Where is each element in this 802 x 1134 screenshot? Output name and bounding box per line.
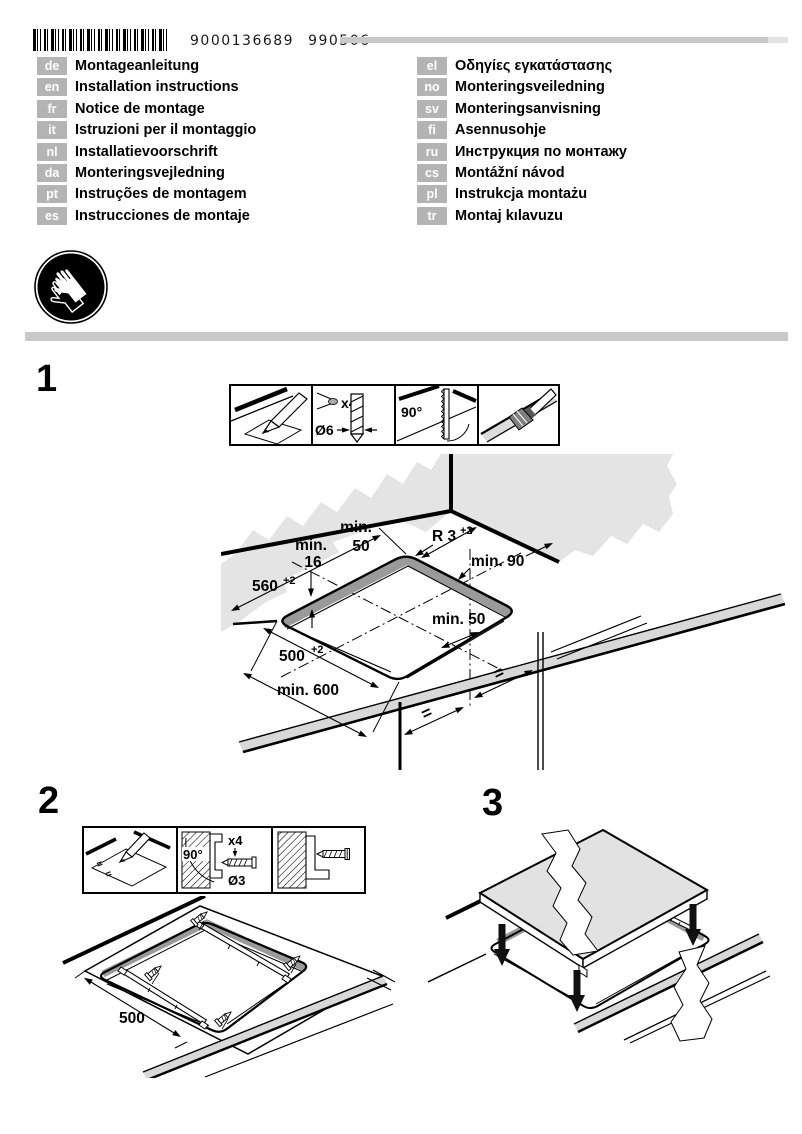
language-code-badge: es xyxy=(37,207,67,225)
worktop-outline xyxy=(85,906,382,1054)
language-title: Asennusohje xyxy=(455,122,546,138)
dim-min-90: min. 90 xyxy=(471,553,524,570)
language-code-badge: fr xyxy=(37,100,67,118)
dim-500-sup: +2 xyxy=(311,644,324,656)
language-title: Monteringsveiledning xyxy=(455,79,605,95)
dim-min-50: min. 50 xyxy=(432,611,485,628)
language-title: Οδηγίες εγκατάστασης xyxy=(455,58,612,74)
language-title: Montaj kılavuzu xyxy=(455,208,563,224)
dim-radius: R 3 xyxy=(432,528,457,545)
language-code-badge: en xyxy=(37,78,67,96)
language-title: Инструкция по монтажу xyxy=(455,144,627,160)
language-title: Notice de montage xyxy=(75,101,205,117)
language-title: Instruções de montagem xyxy=(75,186,247,202)
dim-min-600: min. 600 xyxy=(277,682,339,699)
language-code-badge: fi xyxy=(417,121,447,139)
section-divider-bar xyxy=(25,332,788,341)
dim-16: 16 xyxy=(304,554,322,571)
worktop-front-edge xyxy=(239,594,785,752)
language-row: trMontaj kılavuzu xyxy=(417,207,627,225)
language-row: enInstallation instructions xyxy=(37,78,256,96)
language-code-badge: tr xyxy=(417,207,447,225)
language-code-badge: no xyxy=(417,78,447,96)
language-row: esInstrucciones de montaje xyxy=(37,207,256,225)
language-title: Istruzioni per il montaggio xyxy=(75,122,256,138)
language-row: csMontážní návod xyxy=(417,164,627,182)
language-code-badge: pl xyxy=(417,185,447,203)
language-title: Installatievoorschrift xyxy=(75,144,218,160)
protective-gloves-icon xyxy=(33,249,109,325)
cut-angle-label: 90° xyxy=(401,404,422,420)
language-code-badge: cs xyxy=(417,164,447,182)
equal-spacing-left: = xyxy=(418,702,435,723)
dim-min-word-left: min. xyxy=(295,537,327,554)
language-code-badge: pt xyxy=(37,185,67,203)
language-code-badge: de xyxy=(37,57,67,75)
language-code-badge: sv xyxy=(417,100,447,118)
language-title: Instrukcja montażu xyxy=(455,186,587,202)
manual-page: 9000136689990506 deMontageanleitung enIn… xyxy=(0,0,802,1134)
language-code-badge: el xyxy=(417,57,447,75)
language-title: Montageanleitung xyxy=(75,58,199,74)
bracket-angle-label: 90° xyxy=(183,847,203,862)
header-divider-bar xyxy=(340,37,768,43)
language-list-left: deMontageanleitung enInstallation instru… xyxy=(37,57,256,228)
dim-560: 560 xyxy=(252,578,278,595)
step-2-rails-diagram: 500 xyxy=(55,896,395,1078)
counter-left-edge xyxy=(428,954,486,982)
language-code-badge: nl xyxy=(37,143,67,161)
barcode-icon xyxy=(33,29,170,51)
dim-radius-sup: +2 xyxy=(460,525,473,537)
language-title: Installation instructions xyxy=(75,79,239,95)
barcode-number: 9000136689 xyxy=(190,33,294,49)
language-code-badge: da xyxy=(37,164,67,182)
language-code-badge: it xyxy=(37,121,67,139)
step-3-insert-diagram xyxy=(428,828,792,1044)
language-row: itIstruzioni per il montaggio xyxy=(37,121,256,139)
language-row: plInstrukcja montażu xyxy=(417,185,627,203)
step-1-cutout-diagram: min. 50 min. 16 560 +2 R 3 +2 min. 90 mi… xyxy=(221,454,791,774)
step-1-tool-strip: x4 Ø6 90° xyxy=(229,384,560,446)
step-1-number: 1 xyxy=(36,360,57,398)
language-row: nlInstallatievoorschrift xyxy=(37,143,256,161)
drill-diameter-label: Ø6 xyxy=(315,422,334,438)
language-row: ruИнструкция по монтажу xyxy=(417,143,627,161)
language-row: svMonteringsanvisning xyxy=(417,100,627,118)
language-title: Monteringsvejledning xyxy=(75,165,225,181)
dim-50-top: 50 xyxy=(352,538,369,555)
language-row: elΟδηγίες εγκατάστασης xyxy=(417,57,627,75)
cooktop xyxy=(480,830,707,977)
language-row: fiAsennusohje xyxy=(417,121,627,139)
pilot-hole-diameter-label: Ø3 xyxy=(228,873,245,888)
language-title: Instrucciones de montaje xyxy=(75,208,250,224)
language-code-badge: ru xyxy=(417,143,447,161)
language-row: deMontageanleitung xyxy=(37,57,256,75)
language-title: Monteringsanvisning xyxy=(455,101,601,117)
dim-min-word-top: min. xyxy=(340,519,372,536)
language-row: daMonteringsvejledning xyxy=(37,164,256,182)
language-row: ptInstruções de montagem xyxy=(37,185,256,203)
language-list-right: elΟδηγίες εγκατάστασης noMonteringsveile… xyxy=(417,57,627,228)
language-row: noMonteringsveiledning xyxy=(417,78,627,96)
language-title: Montážní návod xyxy=(455,165,565,181)
dim-500: 500 xyxy=(279,648,305,665)
dim-500-step2: 500 xyxy=(119,1010,145,1027)
step-2-number: 2 xyxy=(38,782,59,820)
language-row: frNotice de montage xyxy=(37,100,256,118)
step-3-number: 3 xyxy=(482,784,503,822)
dim-560-sup: +2 xyxy=(283,575,296,587)
step-2-tool-strip: = = 90° x4 Ø3 xyxy=(82,826,366,894)
header-divider-bar-tail xyxy=(768,37,788,43)
screw-count-label: x4 xyxy=(228,833,243,848)
